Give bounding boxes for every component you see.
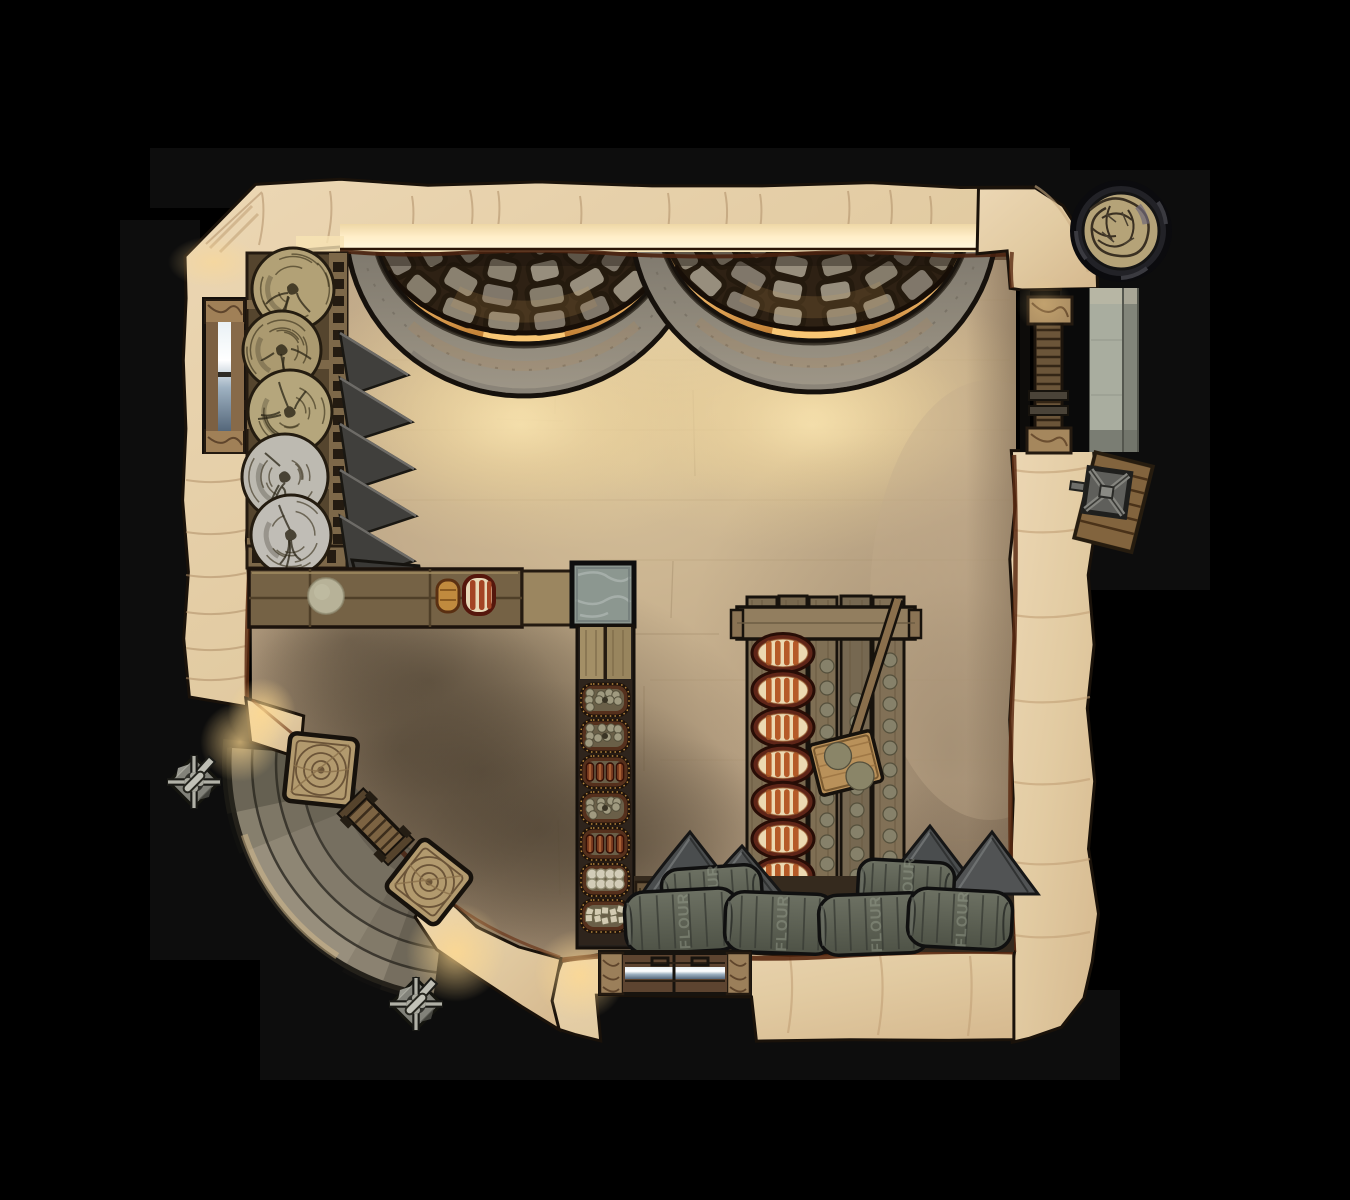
svg-text:FLOUR: FLOUR xyxy=(675,892,695,949)
svg-text:FLOUR: FLOUR xyxy=(867,895,886,952)
svg-text:FLOUR: FLOUR xyxy=(953,890,973,947)
svg-text:FLOUR: FLOUR xyxy=(773,894,792,951)
